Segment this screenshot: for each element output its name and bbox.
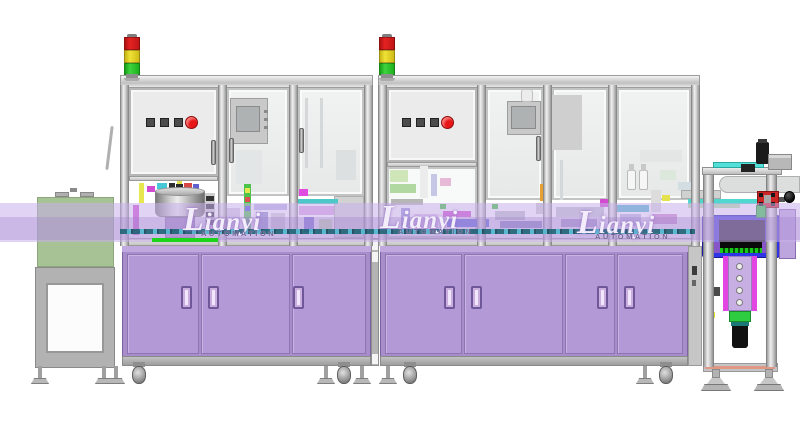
watermark: LianyiAUTOMATION xyxy=(577,204,707,244)
watermark: LianyiAUTOMATION xyxy=(380,199,510,239)
watermark-sub: AUTOMATION xyxy=(398,227,473,236)
automation-line-cad-render: LianyiAUTOMATIONLianyiAUTOMATIONLianyiAU… xyxy=(0,0,800,438)
watermark-layer: LianyiAUTOMATIONLianyiAUTOMATIONLianyiAU… xyxy=(0,0,800,438)
watermark-sub: AUTOMATION xyxy=(201,229,276,238)
watermark: LianyiAUTOMATION xyxy=(183,201,313,241)
watermark-sub: AUTOMATION xyxy=(595,232,670,241)
